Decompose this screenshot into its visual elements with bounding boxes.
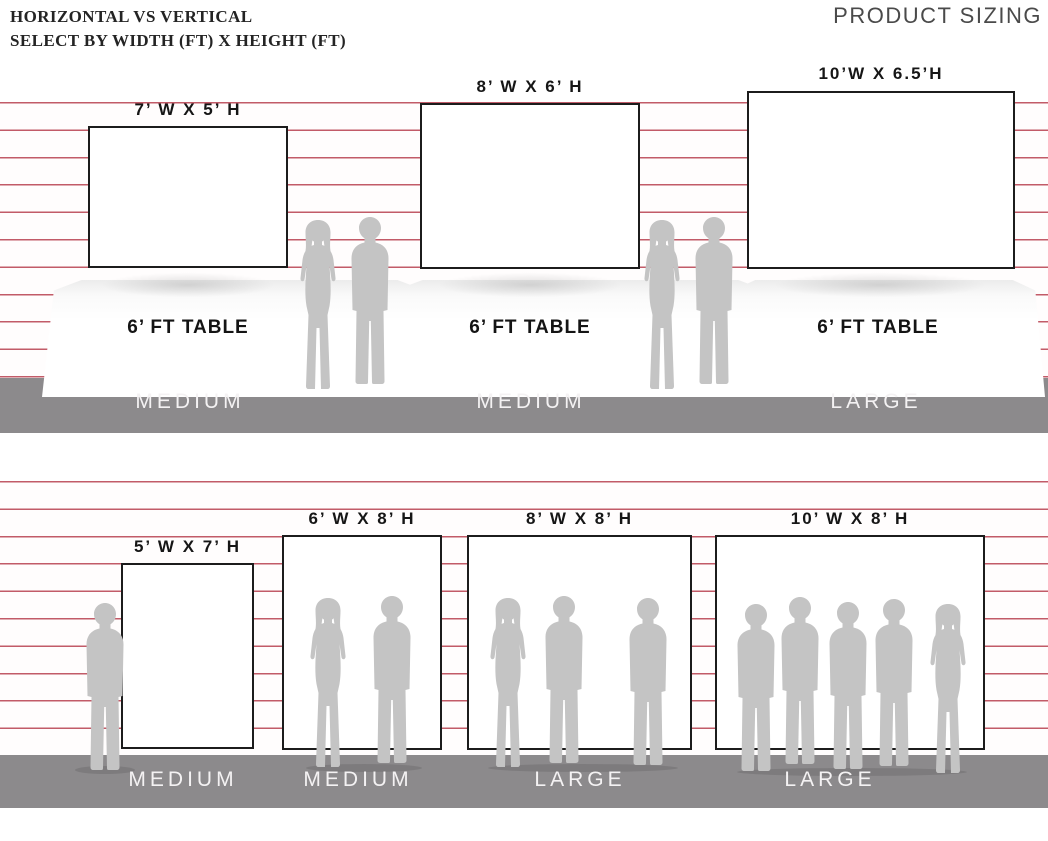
table-label-2: 6’ FT TABLE [455, 317, 605, 339]
single-man-silhouette [72, 590, 138, 775]
couple-silhouette-1 [290, 212, 402, 392]
couple-silhouette-2 [634, 212, 746, 392]
trio-silhouette-8x8 [478, 588, 688, 772]
size-label-8x6: 8’ W X 6’ H [420, 77, 640, 97]
backdrop-8x6 [420, 103, 640, 269]
table-label-3: 6’ FT TABLE [803, 317, 953, 339]
couple-silhouette-6x8 [298, 590, 430, 772]
diagram-title: HORIZONTAL VS VERTICAL SELECT BY WIDTH (… [10, 5, 346, 53]
brand-label: PRODUCT SIZING [833, 3, 1042, 29]
size-label-5x7: 5’ W X 7’ H [121, 537, 254, 557]
size-label-10x65: 10’W X 6.5’H [747, 64, 1015, 84]
product-sizing-diagram: HORIZONTAL VS VERTICAL SELECT BY WIDTH (… [0, 0, 1048, 841]
tier-label-bottom-4: LARGE [750, 768, 910, 792]
title-line-2: SELECT BY WIDTH (FT) X HEIGHT (FT) [10, 29, 346, 53]
tier-label-top-2: MEDIUM [451, 390, 611, 414]
backdrop-7x5 [88, 126, 288, 268]
tier-label-bottom-2: MEDIUM [278, 768, 438, 792]
title-line-1: HORIZONTAL VS VERTICAL [10, 5, 346, 29]
size-label-7x5: 7’ W X 5’ H [88, 100, 288, 120]
tier-label-bottom-1: MEDIUM [103, 768, 263, 792]
group-silhouette-10x8 [726, 590, 978, 776]
size-label-10x8: 10’ W X 8’ H [715, 509, 985, 529]
backdrop-10x65 [747, 91, 1015, 269]
backdrop-5x7 [121, 563, 254, 749]
tier-label-top-1: MEDIUM [110, 390, 270, 414]
backdrop-shadow-2 [435, 272, 625, 298]
table-label-1: 6’ FT TABLE [113, 317, 263, 339]
tier-label-bottom-3: LARGE [500, 768, 660, 792]
backdrop-shadow-3 [770, 272, 990, 298]
tier-label-top-3: LARGE [796, 390, 956, 414]
backdrop-shadow-1 [98, 272, 278, 298]
size-label-6x8: 6’ W X 8’ H [282, 509, 442, 529]
size-label-8x8: 8’ W X 8’ H [467, 509, 692, 529]
